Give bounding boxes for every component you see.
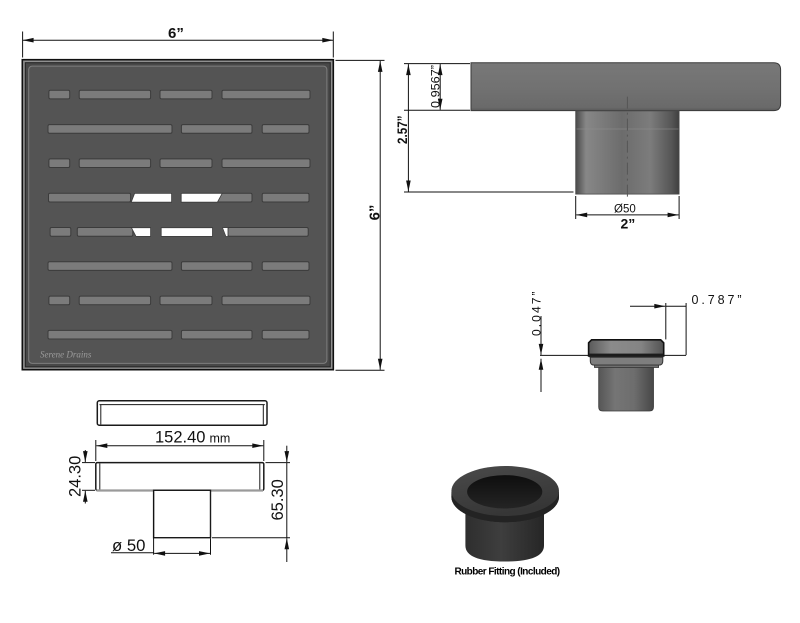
svg-text:ø 50: ø 50 — [112, 537, 146, 555]
svg-text:0.047”: 0.047” — [530, 292, 544, 337]
svg-text:24.30: 24.30 — [67, 456, 85, 497]
svg-text:Ø50: Ø50 — [614, 204, 636, 216]
svg-text:2.57”: 2.57” — [395, 116, 410, 145]
svg-text:152.40: 152.40 — [155, 429, 205, 447]
svg-text:Rubber Fitting (Included): Rubber Fitting (Included) — [454, 567, 559, 578]
svg-text:6”: 6” — [168, 25, 184, 42]
svg-text:0.9567”: 0.9567” — [429, 65, 443, 108]
svg-text:6”: 6” — [367, 205, 384, 221]
svg-text:2”: 2” — [621, 216, 636, 232]
svg-text:Serene Drains: Serene Drains — [40, 350, 92, 360]
svg-text:mm: mm — [210, 432, 231, 446]
svg-text:65.30: 65.30 — [269, 479, 287, 520]
